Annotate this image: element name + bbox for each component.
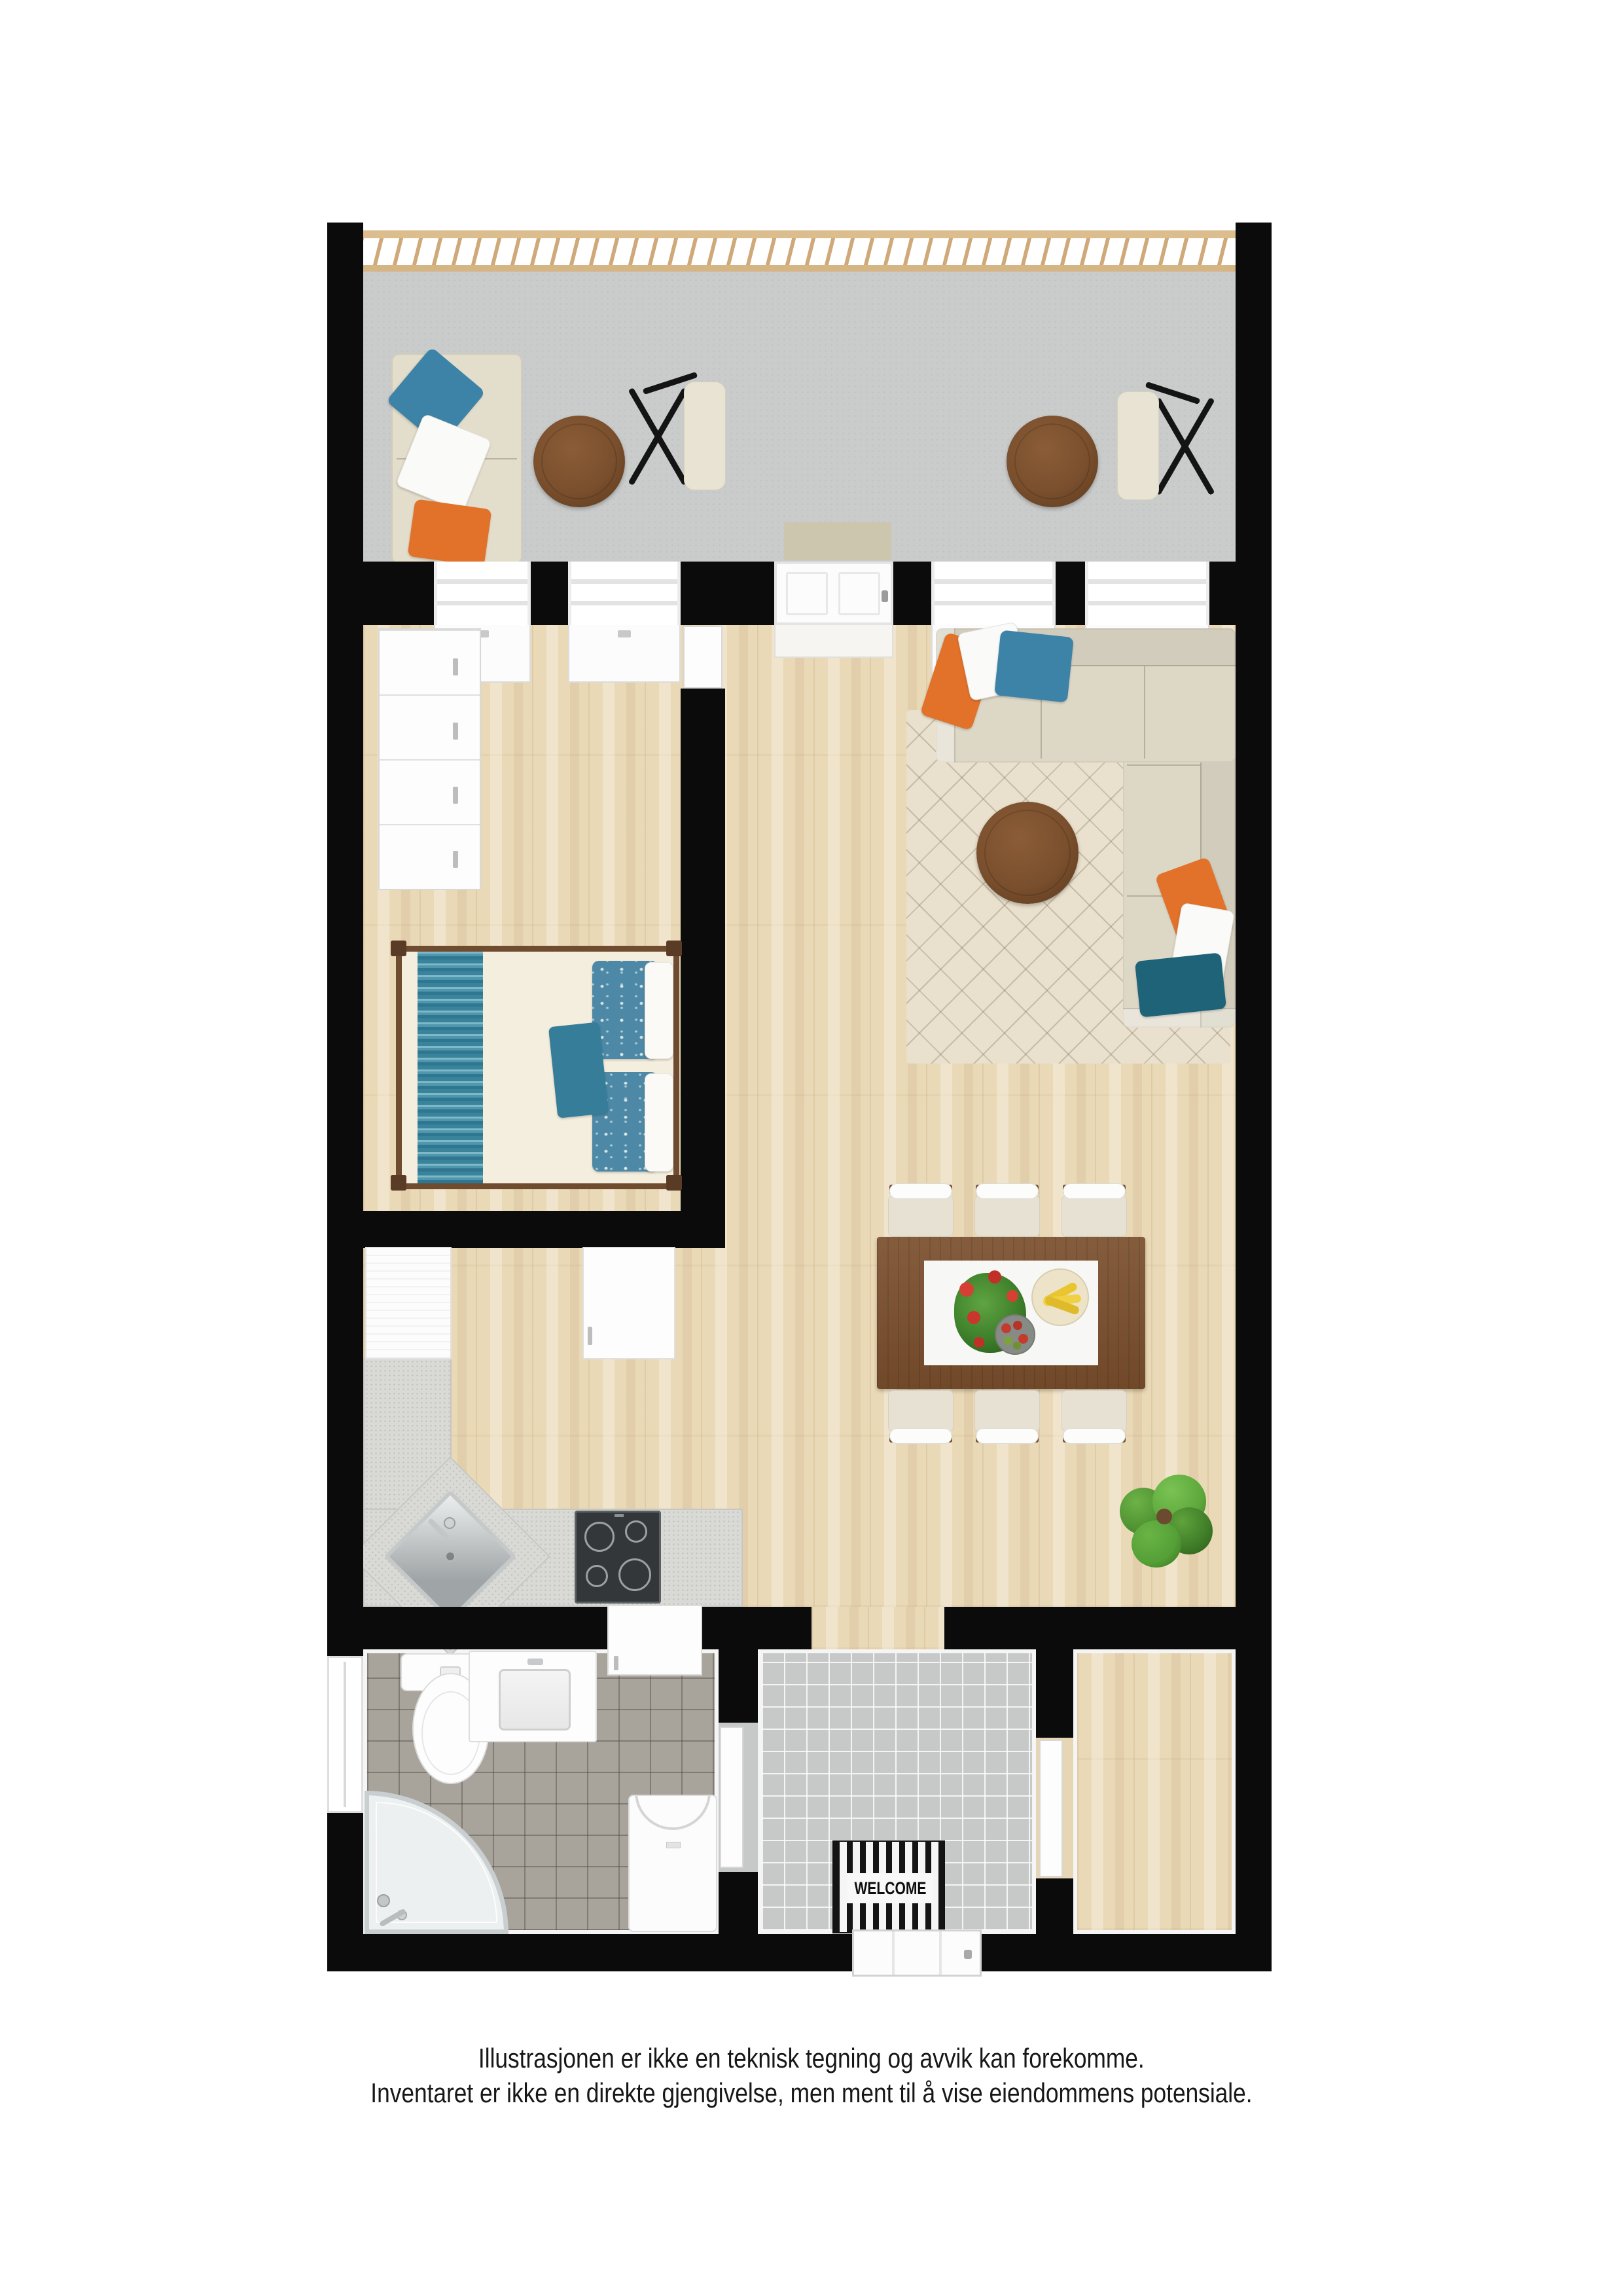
fruit-red — [1013, 1321, 1022, 1330]
chair-seat — [1061, 1390, 1127, 1432]
bed-post — [666, 941, 682, 956]
vanity-faucet — [527, 1659, 543, 1665]
sofa-seam — [1144, 666, 1145, 759]
bed-accent-cushion — [548, 1022, 609, 1118]
kitchen-tall-cabinet — [582, 1247, 675, 1359]
coffee-table — [976, 802, 1079, 904]
balcony-door — [774, 562, 893, 625]
cooktop-burner — [584, 1522, 615, 1552]
sofa-pillow-blue — [994, 630, 1074, 702]
balcony-door-panel — [838, 572, 880, 615]
balcony-chair-1 — [638, 376, 735, 495]
bed-post — [391, 941, 406, 956]
bed-pillow-white — [645, 962, 673, 1059]
cooktop — [575, 1511, 661, 1604]
bathroom-door-leaf — [720, 1727, 743, 1868]
balcony-railing — [363, 230, 1236, 272]
fruit-green — [1004, 1336, 1012, 1345]
chair-canvas-seat — [1117, 391, 1159, 500]
bed — [396, 946, 679, 1189]
bedroom-window-2 — [568, 562, 681, 625]
living-closet-wall — [944, 1607, 1236, 1649]
dining-chair — [1061, 1183, 1127, 1240]
cabinet-handle — [588, 1327, 592, 1345]
shower-fixture — [377, 1894, 390, 1907]
dining-chair — [1061, 1388, 1127, 1444]
flower-blossom — [974, 1337, 984, 1348]
chair-seat — [888, 1390, 954, 1432]
bedroom-door-leaf — [683, 626, 722, 689]
bedroom-living-divider-wall — [681, 689, 725, 1211]
dining-chair — [888, 1183, 954, 1240]
flower-blossom — [988, 1270, 1001, 1283]
dining-chair — [974, 1388, 1040, 1444]
bed-pillow-white — [645, 1073, 673, 1172]
cooktop-control — [615, 1514, 624, 1517]
closet-door-leaf — [1039, 1740, 1063, 1877]
dining-chair — [974, 1183, 1040, 1240]
living-window-1 — [931, 562, 1056, 625]
cabinet-handle — [614, 1656, 618, 1670]
cooktop-burner — [625, 1520, 647, 1543]
disclaimer-text: Illustrasjonen er ikke en teknisk tegnin… — [0, 2041, 1623, 2110]
floorplan-illustration: WELCOME Illustrasjonen er ikke en teknis… — [0, 0, 1623, 2296]
railing-slats — [363, 238, 1236, 265]
kitchen-fridge-cabinet — [365, 1247, 452, 1359]
balcony-door-panel — [786, 572, 828, 615]
bathroom-vanity — [469, 1651, 597, 1742]
balcony-chair-2 — [1108, 386, 1205, 505]
dresser-handle — [453, 658, 458, 675]
chair-seat — [974, 1390, 1040, 1432]
bathroom-wall-cabinet — [607, 1605, 702, 1676]
plant-foliage — [1132, 1520, 1181, 1568]
window-sill — [568, 625, 681, 683]
bathroom-window — [327, 1656, 363, 1813]
chair-back — [1063, 1428, 1126, 1444]
dresser-handle — [453, 723, 458, 740]
kitchen-faucet — [444, 1517, 455, 1529]
washer-control — [666, 1842, 681, 1848]
welcome-mat-text: WELCOME — [854, 1878, 926, 1899]
bed-post — [666, 1175, 682, 1191]
cooktop-burner — [586, 1565, 608, 1587]
flower-blossom — [967, 1311, 980, 1324]
outer-wall-right — [1236, 223, 1272, 1970]
bedroom-dresser — [378, 628, 481, 890]
washing-machine — [628, 1795, 717, 1932]
welcome-mat: WELCOME — [832, 1840, 945, 1933]
cooktop-burner — [618, 1558, 651, 1591]
balcony-pillow-orange — [407, 499, 491, 567]
flower-blossom — [1007, 1290, 1018, 1302]
balcony-table-1 — [533, 416, 625, 507]
closet-floor — [1073, 1649, 1236, 1934]
balcony-door-handle — [882, 590, 888, 602]
fruit-green — [1013, 1342, 1021, 1350]
chair-back — [889, 1428, 952, 1444]
chair-back — [976, 1183, 1039, 1199]
chair-canvas-seat — [684, 382, 726, 490]
chair-back — [976, 1428, 1039, 1444]
banana-bowl — [1031, 1268, 1089, 1326]
outer-wall-bottom — [327, 1934, 1272, 1971]
fruit-red — [1018, 1334, 1028, 1344]
kitchen-bathroom-wall — [363, 1607, 811, 1649]
chair-seat — [1061, 1195, 1127, 1237]
disclaimer-line-1: Illustrasjonen er ikke en teknisk tegnin… — [478, 2041, 1145, 2075]
hall-opening-wood-floor — [811, 1607, 944, 1649]
sofa-seam — [1127, 764, 1200, 766]
dining-chair — [888, 1388, 954, 1444]
welcome-mat-label-box: WELCOME — [847, 1873, 933, 1903]
chair-back — [1063, 1183, 1126, 1199]
fruit-bowl — [995, 1314, 1035, 1355]
washer-door-arc — [635, 1795, 711, 1830]
chair-seat — [888, 1195, 954, 1237]
chair-back — [889, 1183, 952, 1199]
chair-seat — [974, 1195, 1040, 1237]
living-window-2 — [1085, 562, 1209, 625]
dresser-handle — [453, 787, 458, 804]
fruit-red — [1001, 1323, 1011, 1333]
dining-table — [877, 1237, 1145, 1389]
balcony-table-2 — [1007, 416, 1098, 507]
bedroom-window-1 — [434, 562, 531, 625]
bed-post — [391, 1175, 406, 1191]
disclaimer-line-2: Inventaret er ikke en direkte gjengivels… — [370, 2075, 1252, 2110]
sink-drain — [443, 1549, 458, 1564]
entry-door-handle — [964, 1950, 972, 1959]
bathroom-window-glass-line — [344, 1662, 346, 1807]
bed-runner — [418, 952, 483, 1183]
balcony-door-threshold — [774, 625, 893, 658]
dresser-handle — [453, 851, 458, 868]
plant-stem-center — [1156, 1509, 1172, 1524]
sofa-pillow-teal — [1135, 952, 1226, 1017]
entry-door — [852, 1929, 982, 1977]
bedroom-bottom-wall — [363, 1211, 725, 1248]
flower-blossom — [959, 1282, 974, 1297]
vanity-basin — [499, 1669, 571, 1731]
balcony-door-mat — [784, 522, 891, 560]
potted-plant — [1115, 1469, 1214, 1569]
